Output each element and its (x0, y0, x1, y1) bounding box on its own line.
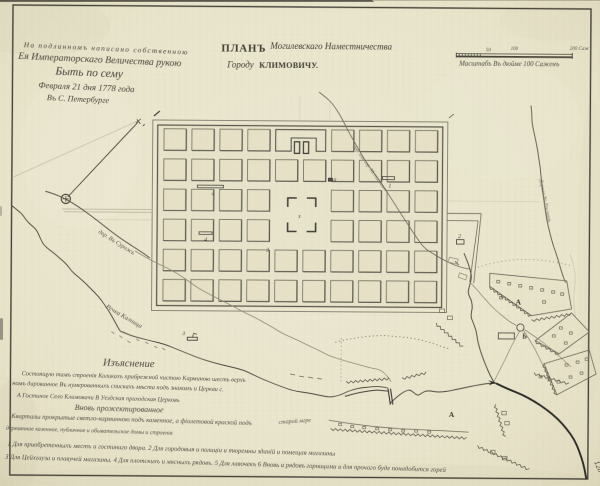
svg-text:А: А (449, 410, 455, 419)
svg-text:100: 100 (511, 47, 519, 52)
svg-text:ПЛАНЪ: ПЛАНЪ (221, 42, 266, 54)
svg-text:Масштабъ Въ дюйме 100 Саженъ: Масштабъ Въ дюйме 100 Саженъ (458, 61, 560, 69)
svg-text:КЛИМОВИЧУ.: КЛИМОВИЧУ. (259, 61, 318, 70)
svg-text:3: 3 (265, 248, 269, 254)
svg-text:Городу: Городу (226, 59, 254, 69)
svg-text:200 Саж: 200 Саж (570, 47, 590, 52)
svg-text:Б: Б (522, 333, 527, 341)
svg-text:2: 2 (458, 234, 461, 240)
svg-text:а: а (333, 177, 336, 183)
svg-text:Могилевскаго Наместничества: Могилевскаго Наместничества (269, 41, 392, 52)
svg-text:Изъяснение: Изъяснение (102, 358, 155, 371)
svg-text:4: 4 (204, 236, 207, 243)
svg-text:50: 50 (486, 48, 492, 53)
svg-text:д: д (182, 330, 185, 337)
svg-text:А: А (516, 298, 522, 307)
svg-text:4: 4 (211, 190, 214, 197)
